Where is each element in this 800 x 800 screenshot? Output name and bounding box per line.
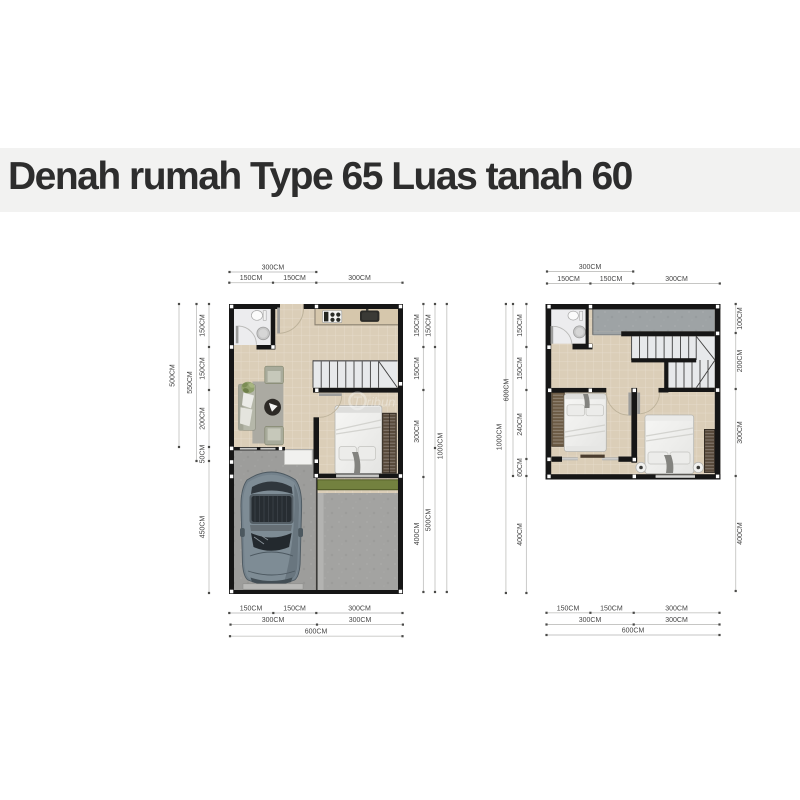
svg-text:600CM: 600CM xyxy=(622,628,645,635)
svg-text:400CM: 400CM xyxy=(737,522,744,545)
svg-text:150CM: 150CM xyxy=(414,357,421,380)
svg-text:T: T xyxy=(353,393,363,409)
svg-text:240CM: 240CM xyxy=(517,413,524,436)
svg-text:400CM: 400CM xyxy=(414,523,421,546)
svg-text:600CM: 600CM xyxy=(504,379,511,402)
svg-text:300CM: 300CM xyxy=(348,606,371,613)
svg-text:300CM: 300CM xyxy=(665,617,688,624)
svg-text:300CM: 300CM xyxy=(665,276,688,283)
svg-text:300CM: 300CM xyxy=(414,420,421,443)
svg-text:600CM: 600CM xyxy=(305,629,328,636)
svg-text:300CM: 300CM xyxy=(262,265,285,272)
svg-text:300CM: 300CM xyxy=(579,617,602,624)
svg-text:400CM: 400CM xyxy=(517,523,524,546)
svg-text:300CM: 300CM xyxy=(348,275,371,282)
svg-text:ribun: ribun xyxy=(367,395,396,410)
svg-text:300CM: 300CM xyxy=(262,617,285,624)
svg-text:150CM: 150CM xyxy=(414,314,421,337)
svg-text:150CM: 150CM xyxy=(426,314,433,337)
svg-text:1000CM: 1000CM xyxy=(437,433,444,460)
svg-text:300CM: 300CM xyxy=(349,617,372,624)
svg-text:150CM: 150CM xyxy=(283,275,306,282)
svg-text:450CM: 450CM xyxy=(200,516,207,539)
svg-text:200CM: 200CM xyxy=(737,350,744,373)
svg-text:150CM: 150CM xyxy=(517,357,524,380)
svg-text:500CM: 500CM xyxy=(426,509,433,532)
svg-text:150CM: 150CM xyxy=(283,606,306,613)
svg-text:150CM: 150CM xyxy=(240,606,263,613)
svg-text:150CM: 150CM xyxy=(200,357,207,380)
svg-text:60CM: 60CM xyxy=(517,458,524,477)
svg-text:500CM: 500CM xyxy=(170,364,177,387)
svg-text:50CM: 50CM xyxy=(200,445,207,464)
svg-text:300CM: 300CM xyxy=(665,605,688,612)
svg-text:150CM: 150CM xyxy=(557,605,580,612)
svg-text:550CM: 550CM xyxy=(187,371,194,394)
svg-text:200CM: 200CM xyxy=(200,407,207,430)
svg-text:100CM: 100CM xyxy=(737,307,744,330)
svg-text:150CM: 150CM xyxy=(600,605,623,612)
svg-text:300CM: 300CM xyxy=(579,264,602,271)
svg-text:150CM: 150CM xyxy=(557,276,580,283)
svg-text:1000CM: 1000CM xyxy=(496,424,503,451)
svg-text:150CM: 150CM xyxy=(200,314,207,337)
svg-text:150CM: 150CM xyxy=(240,275,263,282)
svg-text:150CM: 150CM xyxy=(600,276,623,283)
svg-text:150CM: 150CM xyxy=(517,314,524,337)
svg-text:300CM: 300CM xyxy=(737,421,744,444)
